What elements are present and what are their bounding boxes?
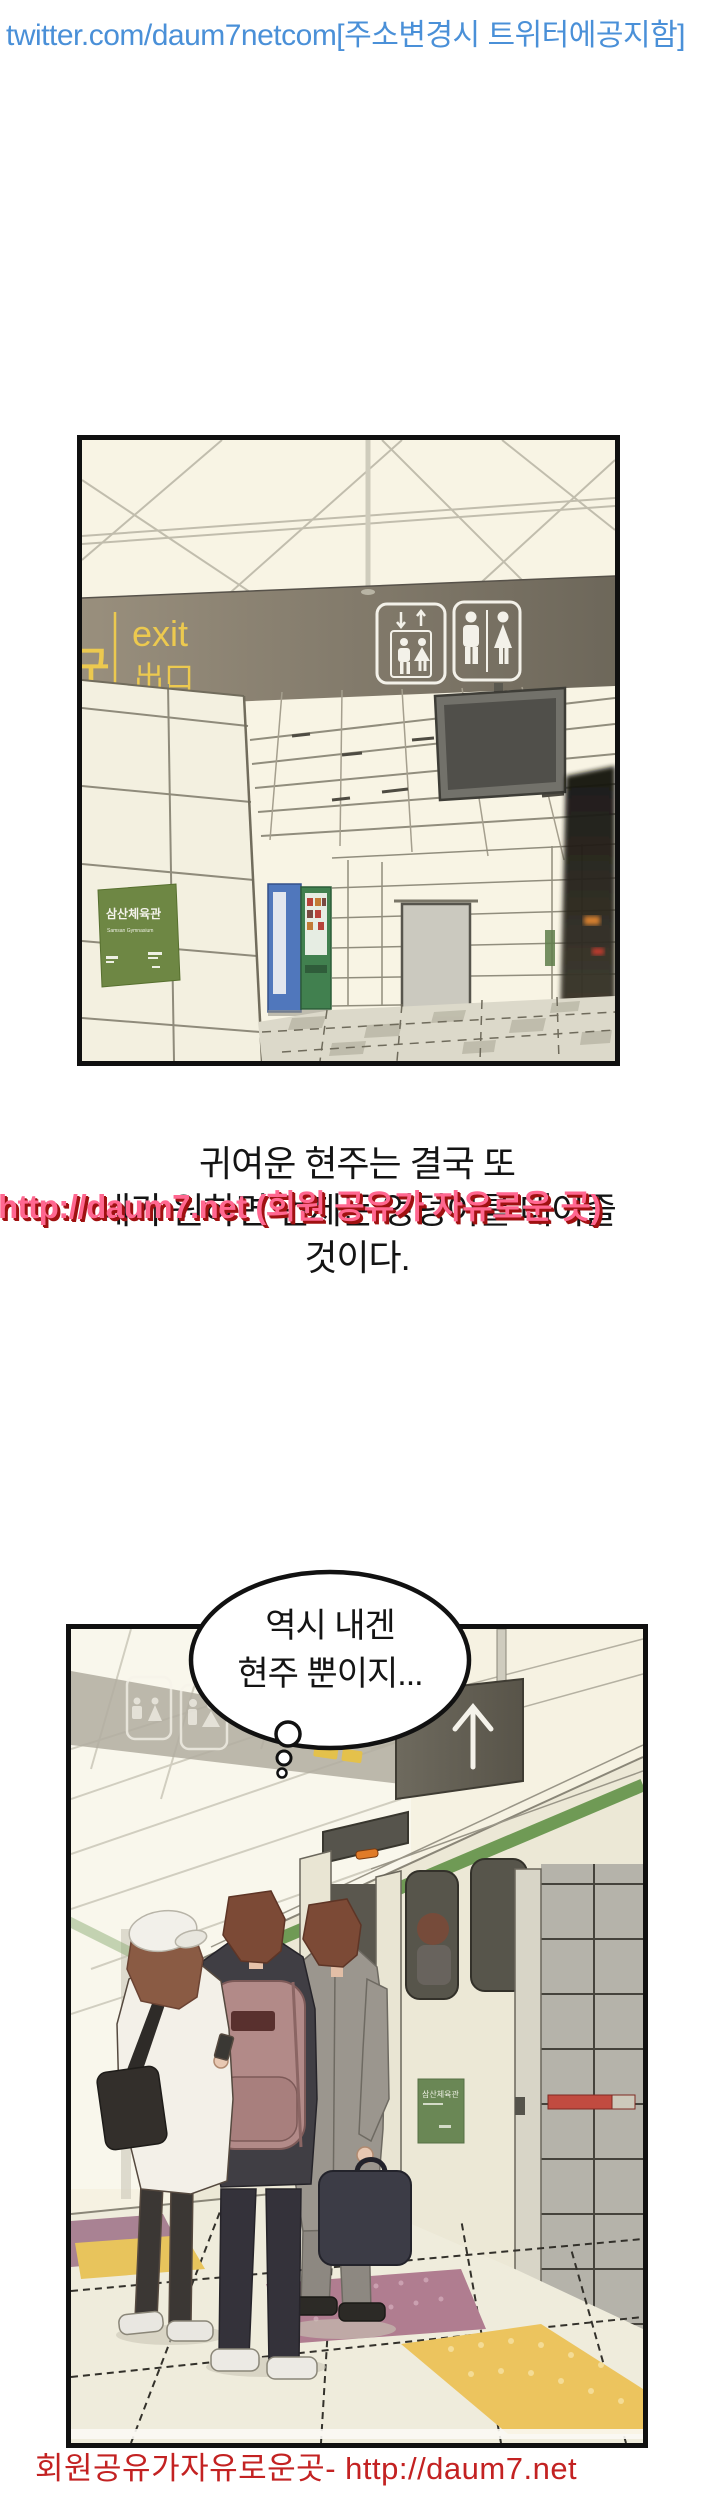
bubble-tail-circle — [277, 1751, 291, 1765]
panel-station-concourse: 출구 exit 出口 — [77, 435, 620, 1066]
vending-machines — [268, 884, 331, 1016]
source-url-header: twitter.com/daum7netcom[주소변경시 트위터에공지함] — [6, 10, 718, 54]
station-sign: 삼산체육관 Samsan Gymnasium — [98, 884, 180, 987]
glass-sign-title: 삼산체육관 — [422, 2089, 459, 2099]
station-sign-subtitle: Samsan Gymnasium — [107, 928, 153, 934]
panel1-art: 출구 exit 出口 — [82, 440, 615, 1061]
tiled-pillar — [82, 680, 262, 1061]
emergency-handle-bar — [548, 2095, 612, 2109]
webtoon-page: twitter.com/daum7netcom[주소변경시 트위터에공지함] — [0, 0, 720, 2500]
site-watermark: http://daum7.net (회원 공유가 자유로운 곳) — [0, 1180, 601, 1228]
bubble-line-1: 역시 내겐 — [200, 1598, 460, 1647]
bubble-line-2: 현주 뿐이지... — [200, 1646, 460, 1695]
narration-line-3: 것이다. — [0, 1234, 714, 1281]
bubble-tail-circle — [278, 1769, 287, 1778]
bubble-tail-circle — [276, 1722, 300, 1746]
hanging-tv-screen — [435, 683, 565, 800]
glass-station-sign: 삼산체육관 — [418, 2079, 464, 2143]
footer-site-url: 회원공유가자유로운곳- http://daum7.net — [35, 2443, 577, 2488]
exit-sign-english: exit — [132, 613, 188, 654]
station-sign-title: 삼산체육관 — [106, 906, 161, 921]
concourse-door — [394, 901, 478, 1018]
window-reflection-head — [417, 1913, 449, 1945]
